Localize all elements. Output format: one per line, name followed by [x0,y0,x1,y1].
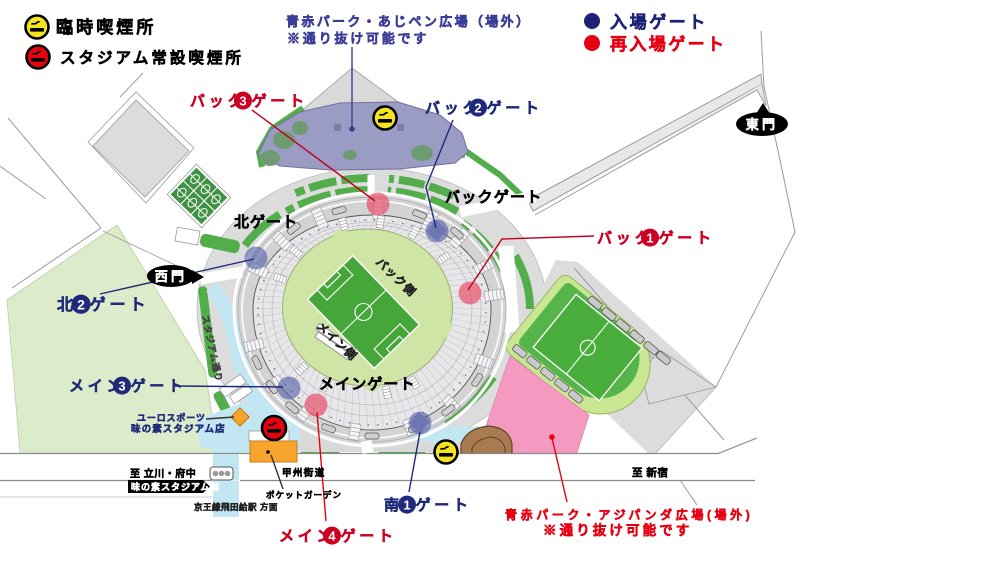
svg-text:ゲート: ゲート [341,527,397,545]
svg-text:バックゲート: バックゲート [445,188,543,206]
svg-text:至 立川・府中: 至 立川・府中 [130,467,196,480]
svg-text:青赤パーク・あじペン広場（場外）: 青赤パーク・あじペン広場（場外） [286,14,531,29]
svg-text:4: 4 [328,529,336,544]
svg-text:入場ゲート: 入場ゲート [610,12,708,32]
svg-text:ゲート: ゲート [90,295,150,314]
svg-text:ゲート: ゲート [252,92,308,110]
svg-text:臨時喫煙所: 臨時喫煙所 [56,17,157,37]
svg-text:3: 3 [239,94,246,109]
svg-text:2: 2 [474,101,481,116]
svg-text:ゲート: ゲート [131,377,187,395]
svg-text:青赤パーク・アジパンダ広場(場外): 青赤パーク・アジパンダ広場(場外) [505,507,753,522]
svg-text:ゲート: ゲート [659,229,715,247]
svg-text:※通り抜け可能です: ※通り抜け可能です [543,522,692,538]
svg-text:味の素スタジアム店: 味の素スタジアム店 [131,423,226,435]
svg-text:味の素スタジアム前: 味の素スタジアム前 [131,481,220,492]
svg-text:至 新宿: 至 新宿 [632,466,668,479]
svg-text:メインゲート: メインゲート [319,375,416,393]
svg-text:3: 3 [118,379,125,394]
svg-text:甲州街道: 甲州街道 [282,467,326,479]
svg-text:ゲート: ゲート [416,496,472,514]
svg-text:京王線飛田給駅 方面: 京王線飛田給駅 方面 [194,502,278,512]
svg-text:1: 1 [646,231,653,246]
svg-text:※通り抜け可能です: ※通り抜け可能です [287,31,429,46]
svg-text:1: 1 [403,498,410,513]
svg-text:東門: 東門 [746,117,779,132]
svg-text:再入場ゲート: 再入場ゲート [610,34,726,54]
svg-text:ポケットガーデン: ポケットガーデン [266,490,342,500]
svg-text:スタジアム常設喫煙所: スタジアム常設喫煙所 [60,48,244,67]
svg-text:ゲート: ゲート [487,99,543,117]
svg-text:北ゲート: 北ゲート [234,213,298,231]
svg-text:西門: 西門 [155,269,188,284]
svg-text:ユーロスポーツ: ユーロスポーツ [137,412,206,423]
svg-text:2: 2 [77,297,85,313]
